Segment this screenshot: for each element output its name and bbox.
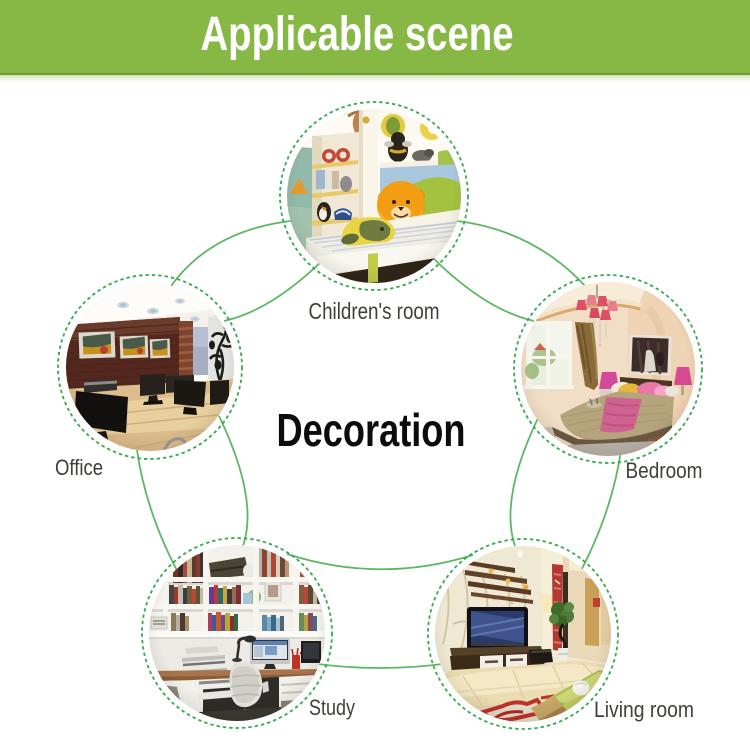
svg-text:Decoration: Decoration (277, 404, 466, 456)
svg-text:Living room: Living room (594, 697, 694, 722)
svg-text:Bedroom: Bedroom (626, 458, 703, 483)
svg-text:Applicable scene: Applicable scene (201, 8, 514, 61)
svg-text:Children's room: Children's room (309, 298, 440, 324)
svg-text:Office: Office (55, 455, 103, 480)
svg-text:Study: Study (309, 695, 355, 720)
